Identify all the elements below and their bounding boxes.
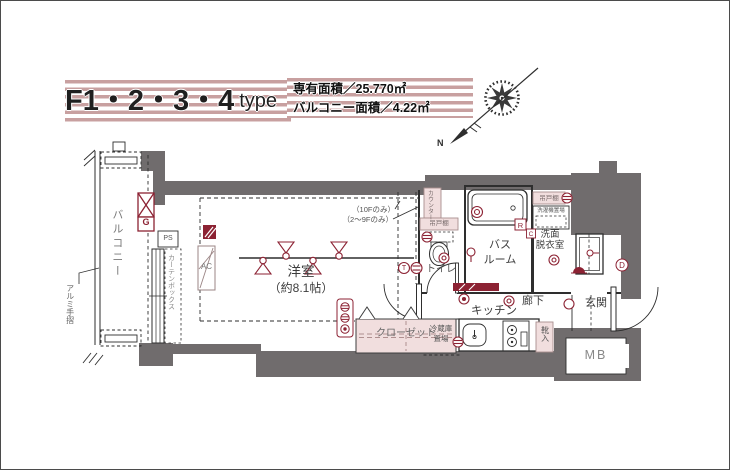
badge-d: D — [616, 262, 628, 271]
north-arrowhead — [450, 128, 468, 144]
badge-c: C — [527, 231, 536, 238]
floorplan-page: F1・2・3・4 type 専有面積／25.770㎡ バルコニー面積／4.22㎡… — [0, 0, 730, 470]
note-2-9f-only: （2〜9Fのみ） — [339, 216, 393, 224]
exclusive-area: 専有面積／25.770㎡ — [293, 80, 473, 99]
label-bathroom-2: ルーム — [479, 255, 521, 267]
label-cupboard-wash: 吊戸棚 — [534, 195, 564, 202]
badge-reheat: R — [516, 222, 526, 230]
plan-title-main: F1・2・3・4 — [65, 87, 234, 116]
compass-north-label: N — [437, 139, 444, 149]
toilet-room — [384, 186, 465, 319]
label-aluminum-handrail: アルミ手摺 — [65, 284, 74, 324]
label-closet: クローゼット — [359, 329, 453, 340]
label-western-room: 洋室 — [269, 265, 333, 280]
label-washroom-1: 洗面 — [536, 230, 564, 240]
label-corridor: 廊下 — [518, 296, 548, 308]
label-balcony: バルコニー — [110, 209, 122, 279]
window-and-curtainbox — [149, 231, 181, 343]
label-pipe-space: PS — [158, 235, 178, 243]
plan-title: F1・2・3・4 type — [65, 80, 291, 122]
plan-title-suffix: type — [239, 91, 277, 111]
label-bathroom-1: バス — [483, 240, 517, 252]
label-toilet: トイレ — [420, 265, 462, 276]
note-10f-only: （10Fのみ） — [349, 206, 395, 214]
label-air-conditioner: AC — [197, 263, 216, 272]
air-conditioner — [198, 225, 216, 290]
label-kitchen: キッチン — [467, 305, 521, 317]
label-meter-box: MB — [567, 349, 625, 363]
area-info: 専有面積／25.770㎡ バルコニー面積／4.22㎡ — [287, 78, 473, 118]
label-entrance: 玄関 — [582, 298, 610, 310]
balcony-area: バルコニー面積／4.22㎡ — [293, 99, 473, 118]
label-western-room-size: （約8.1帖） — [253, 282, 349, 295]
badge-t: T — [399, 265, 409, 273]
label-shoe-box: 靴入 — [540, 326, 549, 342]
label-curtain-box: カーテンボックス — [167, 254, 175, 310]
badge-gas-meter: G — [138, 218, 154, 228]
label-cupboard-toilet: 吊戸棚 — [421, 220, 457, 227]
label-washroom-2: 脱衣室 — [531, 241, 569, 251]
label-counter: カウンター — [426, 190, 432, 220]
label-washer-space: 洗濯機置場 — [533, 209, 569, 215]
